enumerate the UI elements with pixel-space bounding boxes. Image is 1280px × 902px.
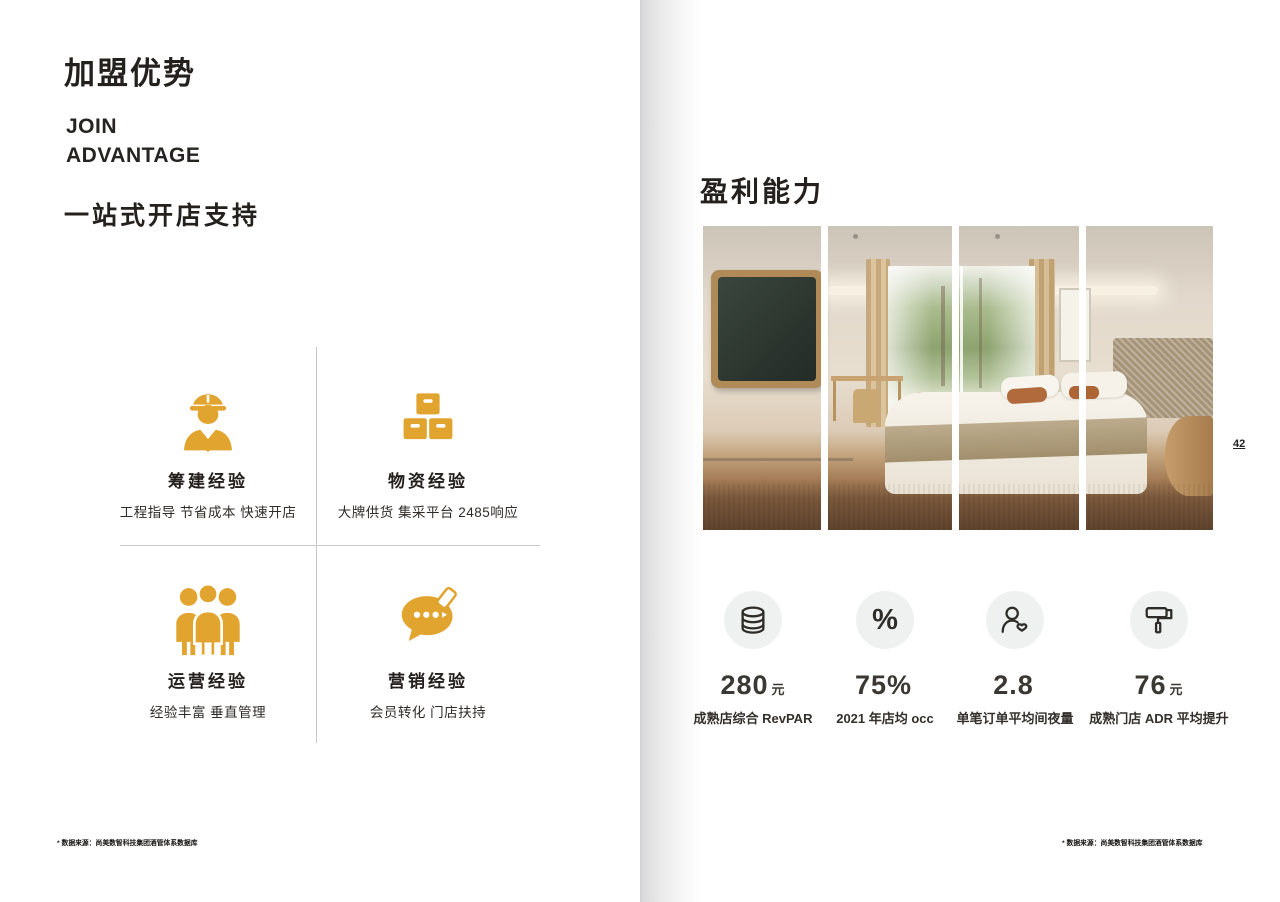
data-source-footnote: * 数据来源：尚美数智科技集团酒管体系数据库 (1062, 838, 1203, 847)
profitability-title: 盈利能力 (700, 170, 824, 210)
quadrant-supplies: 物资经验 大牌供货 集采平台 2485响应 (316, 345, 540, 545)
quadrant-description: 工程指导 节省成本 快速开店 (100, 501, 316, 521)
boxes-icon (316, 379, 540, 459)
panel-gap (821, 226, 828, 530)
chat-marketing-icon (316, 579, 540, 659)
page-title: 加盟优势 (64, 48, 196, 93)
quadrant-construction: 筹建经验 工程指导 节省成本 快速开店 (100, 345, 316, 545)
percent-icon: % (856, 591, 914, 649)
panel-gap (1079, 226, 1086, 530)
page-title-english: JOIN ADVANTAGE (66, 112, 200, 170)
stat-number: 75% (855, 670, 912, 700)
desk (831, 376, 903, 381)
quadrant-title: 筹建经验 (100, 467, 316, 492)
accent-pillow (1007, 387, 1048, 405)
quadrant-marketing: 营销经验 会员转化 门店扶持 (316, 545, 540, 745)
panel-gap (952, 226, 959, 530)
tv-screen (718, 277, 816, 381)
wall-skirting (703, 458, 853, 461)
desk-leg (833, 381, 836, 421)
stat-number: 76 (1134, 670, 1166, 700)
hotel-room-photo (703, 226, 1213, 530)
stat-number: 280 (720, 670, 768, 700)
book-fold-shadow (640, 0, 703, 902)
guest-heart-icon (986, 591, 1044, 649)
quadrant-description: 经验丰富 垂直管理 (100, 701, 316, 721)
stat-label: 成熟门店 ADR 平均提升 (1059, 708, 1259, 727)
paint-roller-icon (1130, 591, 1188, 649)
quadrant-description: 会员转化 门店扶持 (316, 701, 540, 721)
stat-unit: 元 (1170, 682, 1184, 697)
stat-number: 2.8 (993, 670, 1034, 700)
coins-icon (724, 591, 782, 649)
quadrant-description: 大牌供货 集采平台 2485响应 (316, 501, 540, 521)
engineer-icon (100, 379, 316, 459)
data-source-footnote: * 数据来源：尚美数智科技集团酒管体系数据库 (57, 838, 198, 847)
english-line-2: ADVANTAGE (66, 141, 200, 170)
ceiling-spotlight (853, 234, 858, 239)
desk-chair (853, 389, 879, 423)
wall-art-frame (1059, 288, 1091, 362)
quadrant-operations: 运营经验 经验丰富 垂直管理 (100, 545, 316, 745)
quadrant-title: 物资经验 (316, 467, 540, 492)
stat-value: 76元 (1059, 670, 1259, 701)
section-title: 一站式开店支持 (64, 196, 260, 232)
stat-unit: 元 (772, 682, 786, 697)
team-icon (100, 579, 316, 659)
ceiling-spotlight (995, 234, 1000, 239)
hotel-room-scene (703, 226, 1213, 530)
quadrant-title: 营销经验 (316, 667, 540, 692)
quadrant-title: 运营经验 (100, 667, 316, 692)
english-line-1: JOIN (66, 112, 200, 141)
page-number: 42 (1233, 438, 1245, 450)
stat-adr-uplift: 76元 成熟门店 ADR 平均提升 (1059, 591, 1259, 727)
brochure-spread: 加盟优势 JOIN ADVANTAGE 一站式开店支持 筹建经验 工程指导 节省… (0, 0, 1280, 902)
